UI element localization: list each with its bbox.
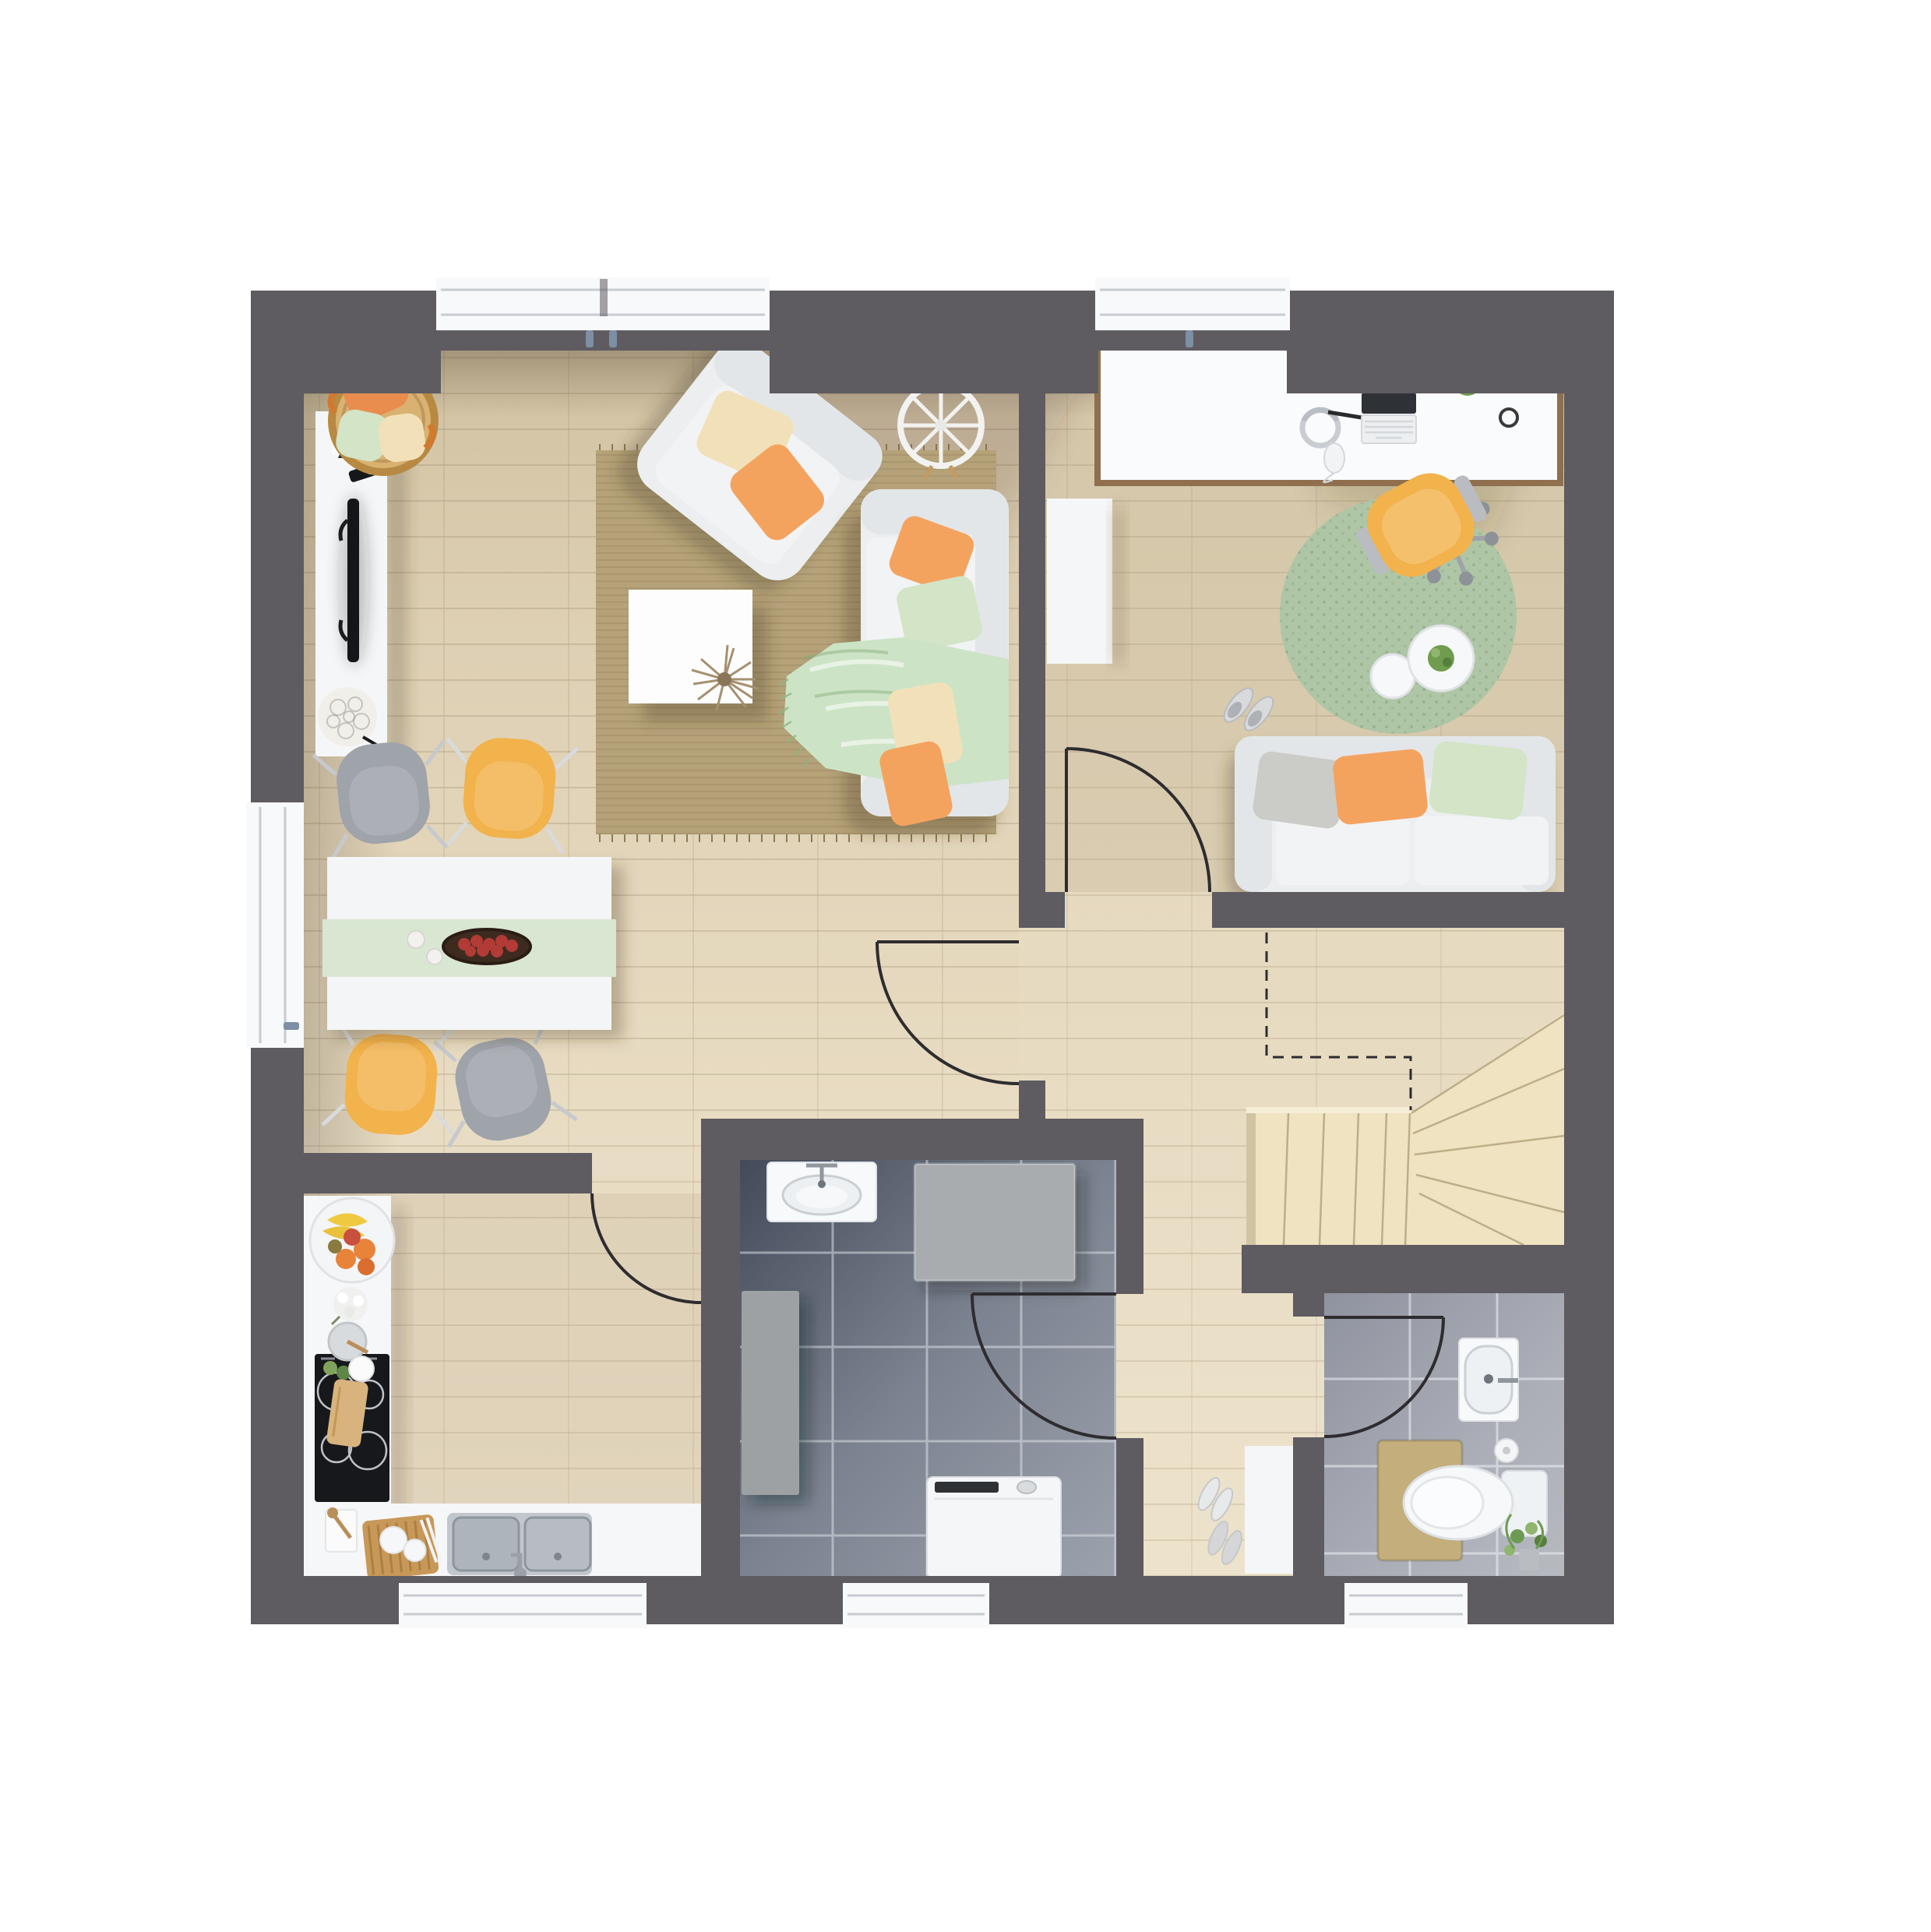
wall-kitchen-north	[304, 1153, 592, 1193]
serving-board	[361, 1514, 442, 1581]
office-pillow-gray	[1251, 750, 1347, 830]
wall-right	[1564, 291, 1614, 1624]
bathroom-tall-cabinet	[742, 1291, 809, 1504]
office-sofa	[1227, 736, 1556, 904]
office-pillow-orange	[1332, 748, 1429, 826]
wall-bathroom-east-upper	[1116, 1160, 1143, 1294]
floor-plan-image	[0, 0, 1931, 1932]
wall-wc-west-lower	[1293, 1437, 1324, 1576]
shoe-cabinet	[1245, 1446, 1293, 1574]
wall-stairs-south	[1242, 1245, 1564, 1293]
wall-bathroom-east-lower	[1116, 1438, 1143, 1576]
tv	[340, 495, 368, 666]
terrace-door-left	[246, 802, 304, 1048]
wall-divider-living-office	[1019, 351, 1045, 892]
wc-sink	[1459, 1338, 1518, 1421]
washing-machine	[927, 1477, 1061, 1578]
fruit-plate	[310, 1198, 394, 1282]
sideboard-shadow	[387, 425, 407, 767]
office-wall-cabinet	[1047, 499, 1112, 664]
wall-office-door-jamb	[1019, 892, 1065, 928]
wall-pier-top-right	[1287, 351, 1564, 393]
wall-pier-top-middle	[770, 351, 1098, 393]
wall-bathroom-north	[701, 1119, 1143, 1160]
floor-plan-svg	[0, 0, 1931, 1932]
coffee-table	[629, 590, 768, 721]
table-plant	[1428, 645, 1454, 672]
office-pillow-green	[1429, 740, 1529, 821]
cabinet-shadow	[1112, 508, 1123, 664]
wc-window	[1344, 1583, 1468, 1628]
basket-pillow-cream	[376, 411, 428, 464]
fruit-bowl	[443, 929, 530, 964]
laptop	[1362, 393, 1416, 443]
wall-wc-west-upper	[1293, 1293, 1324, 1317]
towel-and-spoon	[326, 1507, 357, 1552]
stairs-nosing-strip	[1246, 1107, 1411, 1113]
stairs-edge-shadow	[1246, 1113, 1256, 1245]
shower-unit	[914, 1164, 1084, 1290]
bathroom-washbasin	[767, 1162, 876, 1222]
toilet-paper	[1495, 1439, 1518, 1462]
kitchen-window	[399, 1583, 647, 1628]
wall-bathroom-west	[701, 1160, 740, 1576]
wall-office-south	[1212, 892, 1564, 928]
wall-pier-top-left	[251, 351, 441, 393]
double-sink	[447, 1513, 592, 1580]
bathroom-window	[843, 1583, 989, 1628]
